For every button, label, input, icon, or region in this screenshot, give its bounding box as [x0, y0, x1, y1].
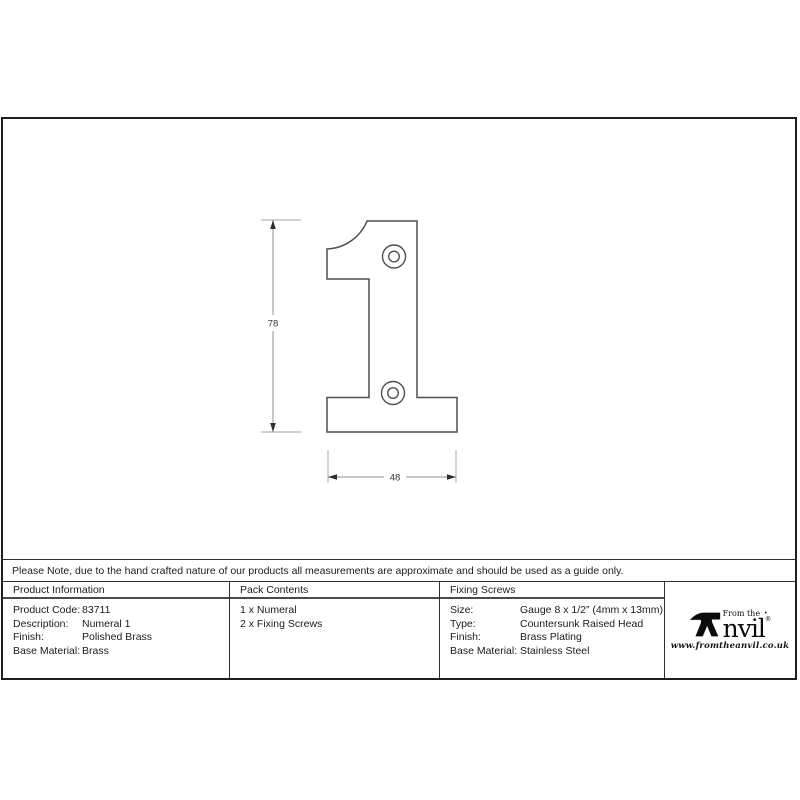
spec-label: Base Material:: [450, 645, 520, 659]
product-information-column: Product Information Product Code: 83711 …: [3, 582, 229, 678]
arrowhead-right: [447, 474, 456, 480]
pack-contents-column: Pack Contents 1 x Numeral 2 x Fixing Scr…: [229, 582, 439, 678]
arrowhead-left: [328, 474, 337, 480]
spec-label: Finish:: [450, 631, 520, 645]
product-information-body: Product Code: 83711 Description: Numeral…: [3, 599, 229, 678]
logo-name: nvil: [723, 618, 765, 639]
height-dimension: 78: [268, 220, 279, 432]
brand-column: From the · nvil ® www.fromtheanvil.co.uk: [664, 582, 795, 678]
spec-value: Polished Brass: [82, 631, 152, 645]
table-row: Type: Countersunk Raised Head: [450, 618, 664, 632]
height-dimension-label: 78: [268, 319, 279, 330]
spec-label: Description:: [13, 618, 82, 632]
screw-hole-bottom: [382, 382, 405, 405]
spec-label: Type:: [450, 618, 520, 632]
fixing-screws-header: Fixing Screws: [440, 582, 664, 599]
table-row: Description: Numeral 1: [13, 618, 229, 632]
list-item: 1 x Numeral: [240, 604, 439, 618]
screw-hole-top: [383, 245, 406, 268]
spec-value: 83711: [82, 604, 110, 618]
width-dimension: 48: [328, 473, 456, 484]
arrowhead-up: [270, 220, 276, 229]
spec-label: Size:: [450, 604, 520, 618]
spec-value: Brass: [82, 645, 109, 659]
spec-sheet-frame: 78 48: [1, 117, 797, 680]
table-row: Base Material: Stainless Steel: [450, 645, 664, 659]
spec-label: Finish:: [13, 631, 82, 645]
anvil-logo: From the · nvil ® www.fromtheanvil.co.uk: [671, 610, 790, 651]
technical-drawing-area: 78 48: [3, 119, 795, 559]
anvil-icon: [689, 610, 722, 639]
table-row: Base Material: Brass: [13, 645, 229, 659]
product-information-header: Product Information: [3, 582, 229, 599]
logo-url: www.fromtheanvil.co.uk: [671, 641, 790, 651]
table-row: Size: Gauge 8 x 1/2” (4mm x 13mm): [450, 604, 664, 618]
spec-sheet-page: 78 48: [0, 0, 800, 800]
list-item: 2 x Fixing Screws: [240, 618, 439, 632]
fixing-screws-body: Size: Gauge 8 x 1/2” (4mm x 13mm) Type: …: [440, 599, 664, 678]
note-row: Please Note, due to the hand crafted nat…: [3, 559, 795, 581]
spec-value: Gauge 8 x 1/2” (4mm x 13mm): [520, 604, 663, 618]
table-row: Finish: Polished Brass: [13, 631, 229, 645]
spec-label: Product Code:: [13, 604, 82, 618]
pack-contents-body: 1 x Numeral 2 x Fixing Screws: [230, 599, 439, 678]
spec-value: Brass Plating: [520, 631, 582, 645]
registered-mark: ®: [765, 616, 772, 622]
table-row: Finish: Brass Plating: [450, 631, 664, 645]
arrowhead-down: [270, 423, 276, 432]
table-row: Product Code: 83711: [13, 604, 229, 618]
numeral-drawing: 78 48: [3, 119, 795, 561]
spec-value: Numeral 1: [82, 618, 130, 632]
spec-table: Product Information Product Code: 83711 …: [3, 581, 795, 678]
width-dimension-label: 48: [390, 473, 401, 484]
fixing-screws-column: Fixing Screws Size: Gauge 8 x 1/2” (4mm …: [439, 582, 664, 678]
spec-value: Countersunk Raised Head: [520, 618, 643, 632]
note-text: Please Note, due to the hand crafted nat…: [12, 565, 624, 577]
spec-value: Stainless Steel: [520, 645, 589, 659]
spec-label: Base Material:: [13, 645, 82, 659]
pack-contents-header: Pack Contents: [230, 582, 439, 599]
